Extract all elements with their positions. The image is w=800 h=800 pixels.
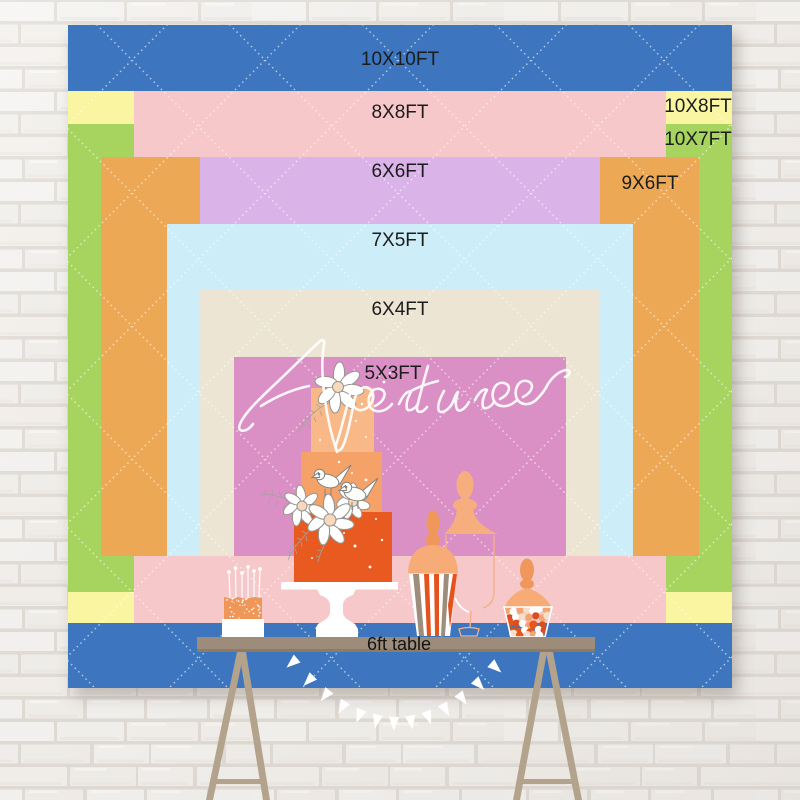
svg-text:6ft table: 6ft table	[367, 634, 431, 654]
